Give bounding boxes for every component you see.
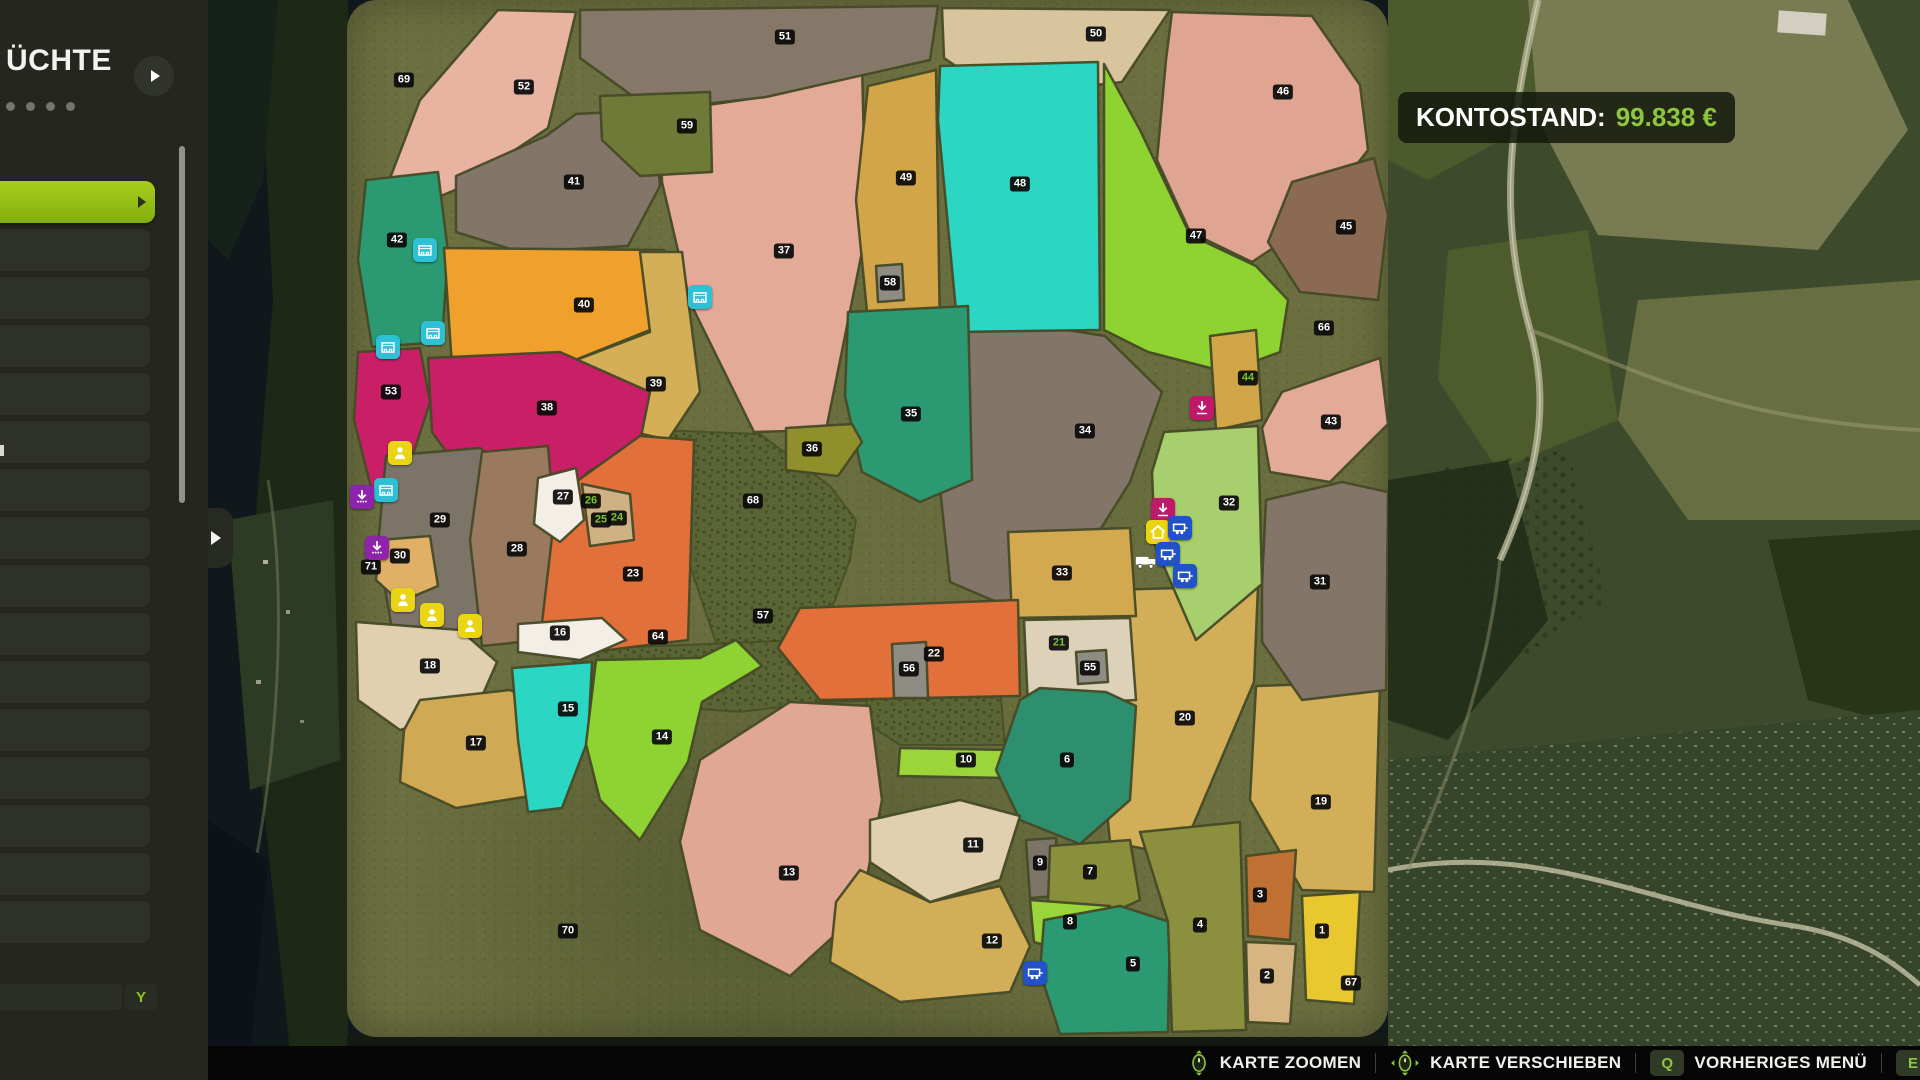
sidebar-item[interactable] — [0, 661, 150, 703]
field-region-5[interactable] — [1040, 906, 1170, 1034]
field-label-51: 51 — [775, 30, 795, 45]
field-label-33: 33 — [1052, 566, 1072, 581]
field-label-47: 47 — [1186, 229, 1206, 244]
hint-label: KARTE VERSCHIEBEN — [1430, 1053, 1621, 1073]
game-screen: 3437201931131251504648474945435242415940… — [0, 0, 1920, 1080]
field-region-31[interactable] — [1262, 482, 1388, 700]
divider — [1375, 1053, 1376, 1073]
vehicle-icon[interactable] — [1134, 550, 1158, 574]
field-label-1: 1 — [1315, 924, 1329, 939]
field-label-5: 5 — [1126, 957, 1140, 972]
field-label-3: 3 — [1253, 888, 1267, 903]
field-label-18: 18 — [420, 659, 440, 674]
field-label-9: 9 — [1033, 856, 1047, 871]
sidebar-item-list — [0, 0, 208, 1080]
hint-map-zoom: KARTE ZOOMEN — [1188, 1049, 1361, 1077]
previous-menu-button[interactable]: Q VORHERIGES MENÜ — [1650, 1050, 1867, 1076]
field-label-69: 69 — [394, 73, 414, 88]
field-label-71: 71 — [361, 560, 381, 575]
shop-icon[interactable] — [1173, 564, 1197, 588]
field-label-50: 50 — [1086, 27, 1106, 42]
field-label-57: 57 — [753, 609, 773, 624]
sidebar-item[interactable] — [0, 469, 150, 511]
field-label-22: 22 — [924, 647, 944, 662]
shop-icon[interactable] — [1023, 961, 1047, 985]
field-label-41: 41 — [564, 175, 584, 190]
production-icon[interactable] — [421, 321, 445, 345]
field-label-14: 14 — [652, 730, 672, 745]
field-label-43: 43 — [1321, 415, 1341, 430]
field-label-48: 48 — [1010, 177, 1030, 192]
production-icon[interactable] — [688, 285, 712, 309]
shop-icon[interactable] — [1168, 516, 1192, 540]
sidebar-footer-row[interactable] — [0, 984, 122, 1010]
sidebar-item[interactable] — [0, 421, 150, 463]
mouse-wheel-icon — [1188, 1049, 1210, 1077]
production-icon[interactable] — [376, 335, 400, 359]
sidebar-item[interactable] — [0, 373, 150, 415]
field-label-59: 59 — [677, 119, 697, 134]
field-label-35: 35 — [901, 407, 921, 422]
field-region-36[interactable] — [786, 424, 862, 476]
field-label-6: 6 — [1060, 753, 1074, 768]
field-region-33[interactable] — [1008, 528, 1136, 618]
field-label-40: 40 — [574, 298, 594, 313]
sellpoint-icon[interactable] — [365, 536, 389, 560]
sidebar-item[interactable] — [0, 805, 150, 847]
clipped-label-fragment — [0, 445, 4, 456]
hint-label: KARTE ZOOMEN — [1220, 1053, 1361, 1073]
field-label-13: 13 — [779, 866, 799, 881]
field-label-4: 4 — [1193, 918, 1207, 933]
field-label-39: 39 — [646, 377, 666, 392]
sidebar-scrollbar[interactable] — [179, 146, 185, 503]
field-label-46: 46 — [1273, 85, 1293, 100]
field-label-2: 2 — [1260, 969, 1274, 984]
key-hint-q: Q — [1650, 1050, 1684, 1076]
field-region-10[interactable] — [898, 748, 1010, 778]
worker-icon[interactable] — [420, 603, 444, 627]
chevron-right-icon — [211, 531, 221, 545]
field-label-8: 8 — [1063, 915, 1077, 930]
field-label-19: 19 — [1311, 795, 1331, 810]
field-label-7: 7 — [1083, 865, 1097, 880]
field-label-36: 36 — [802, 442, 822, 457]
worker-icon[interactable] — [388, 441, 412, 465]
shop-icon[interactable] — [1156, 542, 1180, 566]
field-label-24: 24 — [607, 511, 627, 526]
satellite-background-east — [1388, 0, 1920, 1080]
sidebar-item[interactable] — [0, 229, 150, 271]
divider — [1635, 1053, 1636, 1073]
field-label-21: 21 — [1049, 636, 1069, 651]
sidebar-item[interactable] — [0, 325, 150, 367]
field-label-67: 67 — [1341, 976, 1361, 991]
divider — [1881, 1053, 1882, 1073]
bottom-control-bar: KARTE ZOOMEN KARTE VERSCHIEBEN Q VORHERI… — [208, 1046, 1920, 1080]
hint-label: VORHERIGES MENÜ — [1694, 1053, 1867, 1073]
field-label-28: 28 — [507, 542, 527, 557]
field-label-44: 44 — [1238, 371, 1258, 386]
field-label-12: 12 — [982, 934, 1002, 949]
worker-icon[interactable] — [458, 614, 482, 638]
field-label-32: 32 — [1219, 496, 1239, 511]
field-region-48[interactable] — [938, 62, 1100, 332]
sidebar-item[interactable] — [0, 277, 150, 319]
field-label-31: 31 — [1310, 575, 1330, 590]
field-label-37: 37 — [774, 244, 794, 259]
production-icon[interactable] — [413, 238, 437, 262]
balance-value: 99.838 € — [1616, 102, 1717, 133]
field-label-23: 23 — [623, 567, 643, 582]
satellite-east-art — [1388, 0, 1920, 1080]
field-label-49: 49 — [896, 171, 916, 186]
field-label-52: 52 — [514, 80, 534, 95]
worker-icon[interactable] — [391, 588, 415, 612]
mouse-move-icon — [1390, 1049, 1420, 1077]
field-label-34: 34 — [1075, 424, 1095, 439]
field-label-53: 53 — [381, 385, 401, 400]
field-label-17: 17 — [466, 736, 486, 751]
field-label-29: 29 — [430, 513, 450, 528]
sidebar-item[interactable] — [0, 853, 150, 895]
field-label-15: 15 — [558, 702, 578, 717]
field-label-66: 66 — [1314, 321, 1334, 336]
sidebar-item[interactable] — [0, 757, 150, 799]
field-label-27: 27 — [553, 490, 573, 505]
field-label-16: 16 — [550, 626, 570, 641]
field-label-38: 38 — [537, 401, 557, 416]
field-label-20: 20 — [1175, 711, 1195, 726]
field-label-30: 30 — [390, 549, 410, 564]
field-overlay — [347, 0, 1388, 1037]
field-label-45: 45 — [1336, 220, 1356, 235]
sidebar-item[interactable] — [0, 901, 150, 943]
field-label-55: 55 — [1080, 661, 1100, 676]
field-label-11: 11 — [963, 838, 983, 853]
sidebar-item[interactable] — [0, 517, 150, 559]
unload-icon[interactable] — [1190, 396, 1214, 420]
farmhouse-icon[interactable] — [1146, 520, 1170, 544]
field-label-58: 58 — [880, 276, 900, 291]
field-label-56: 56 — [899, 662, 919, 677]
field-region-35[interactable] — [845, 306, 972, 502]
sidebar-item[interactable] — [0, 613, 150, 655]
sellpoint-icon[interactable] — [350, 485, 374, 509]
field-label-26: 26 — [581, 494, 601, 509]
key-hint-y: Y — [125, 984, 157, 1010]
production-icon[interactable] — [374, 478, 398, 502]
field-label-10: 10 — [956, 753, 976, 768]
field-label-64: 64 — [648, 630, 668, 645]
map-canvas[interactable]: 3437201931131251504648474945435242415940… — [347, 0, 1388, 1037]
field-label-70: 70 — [558, 924, 578, 939]
hint-map-move: KARTE VERSCHIEBEN — [1390, 1049, 1621, 1077]
crops-sidebar: ÜCHTE Y — [0, 0, 208, 1080]
field-region-15[interactable] — [512, 662, 592, 812]
field-label-42: 42 — [387, 233, 407, 248]
key-hint-e[interactable]: E — [1896, 1050, 1920, 1076]
account-balance-badge: KONTOSTAND: 99.838 € — [1398, 92, 1735, 143]
balance-label: KONTOSTAND: — [1416, 102, 1606, 133]
sidebar-item[interactable] — [0, 565, 150, 607]
field-label-68: 68 — [743, 494, 763, 509]
sidebar-item[interactable] — [0, 709, 150, 751]
